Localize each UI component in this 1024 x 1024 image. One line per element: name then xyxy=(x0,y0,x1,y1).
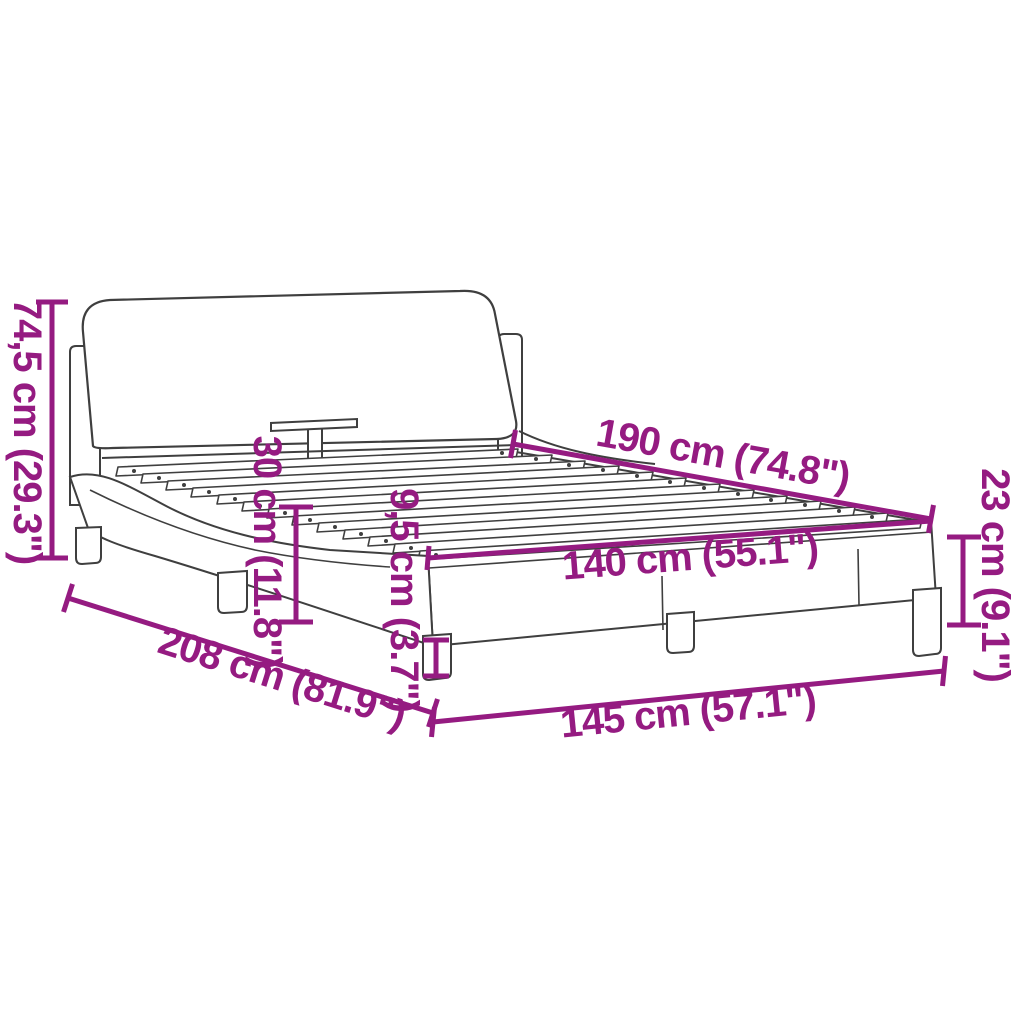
dimension-label-footboard-height: 23 cm (9.1") xyxy=(975,468,1015,682)
bed-frame-drawing xyxy=(0,0,1024,1024)
dimension-label-overall-height: 74,5 cm (29.3") xyxy=(7,298,47,564)
dimension-label-base-height: 30 cm (11.8") xyxy=(247,436,287,669)
dimension-diagram: 74,5 cm (29.3") 30 cm (11.8") 9,5 cm (3.… xyxy=(0,0,1024,1024)
dimension-label-leg-height: 9,5 cm (3.7") xyxy=(384,488,424,712)
